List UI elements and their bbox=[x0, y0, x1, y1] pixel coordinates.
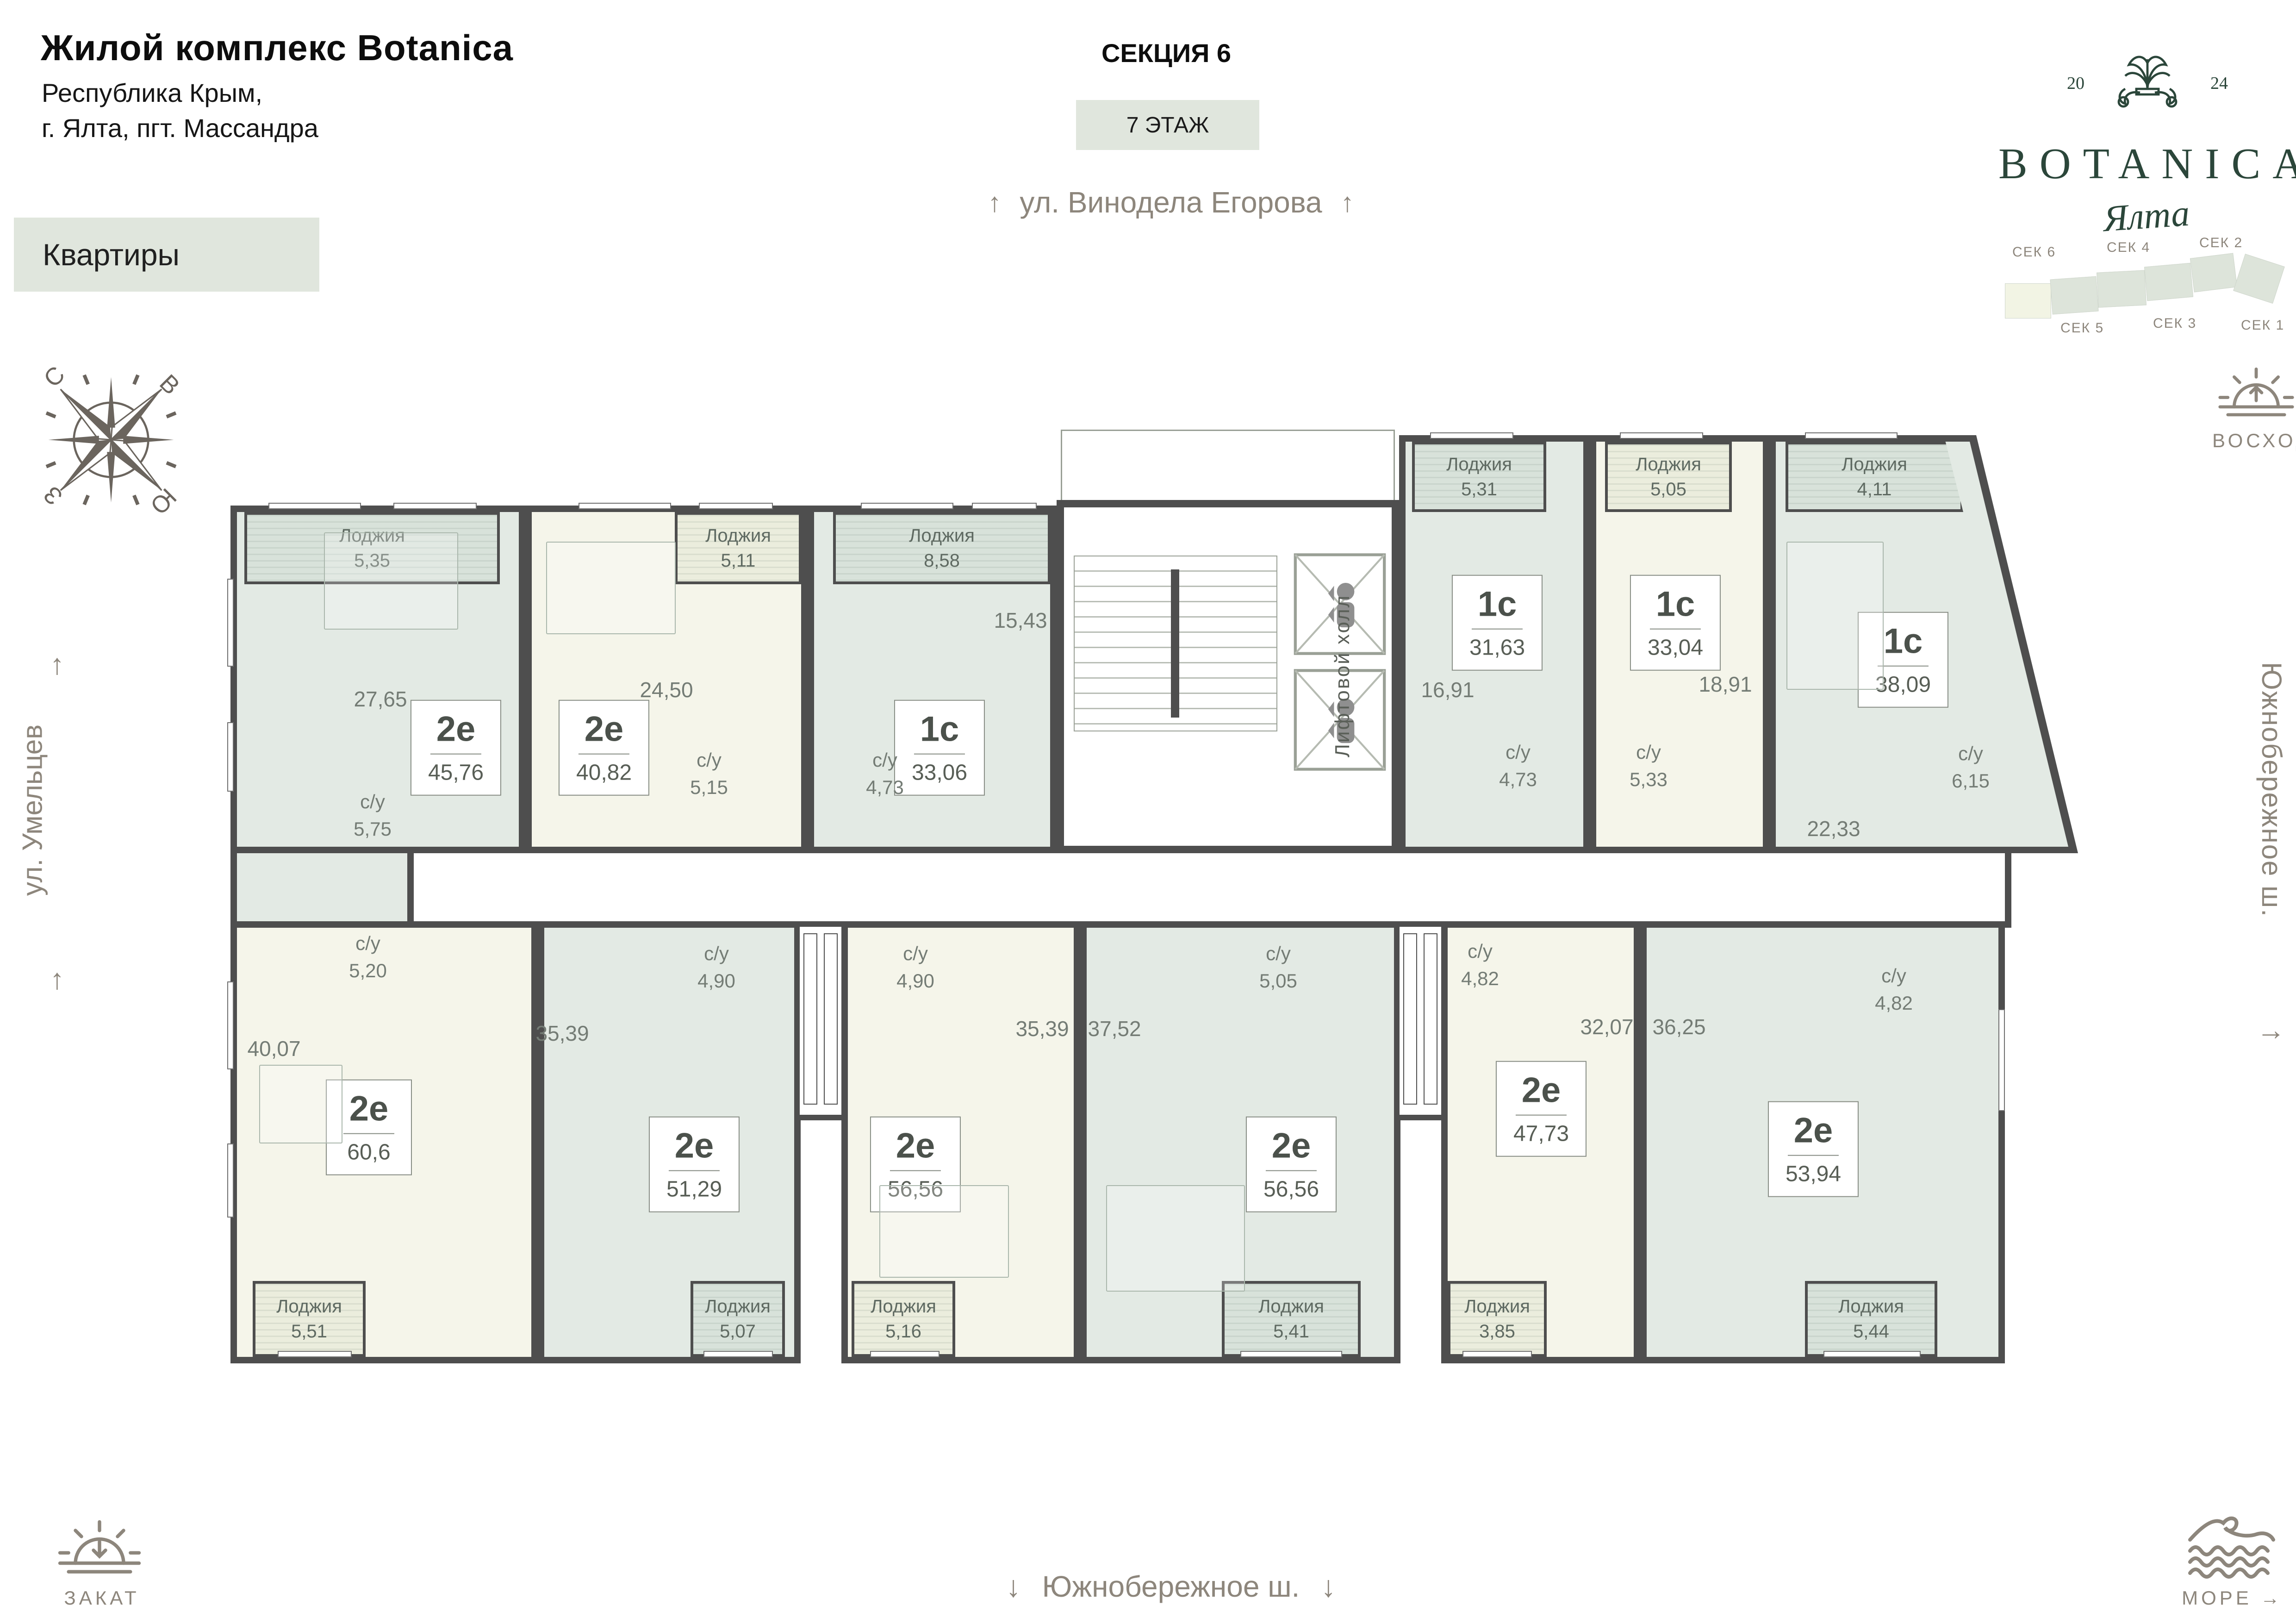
loggia: Лоджия5,51 bbox=[253, 1281, 366, 1357]
section-map-segment-3[interactable] bbox=[2144, 263, 2193, 301]
loggia: Лоджия5,16 bbox=[852, 1281, 955, 1357]
window bbox=[861, 503, 953, 509]
loggia: Лоджия5,41 bbox=[1222, 1281, 1361, 1357]
window bbox=[1620, 432, 1703, 439]
room-area: 36,25 bbox=[1652, 1014, 1705, 1039]
loggia: Лоджия4,11 bbox=[1786, 442, 1963, 512]
room-area: 27,65 bbox=[354, 687, 407, 712]
compass-rose-icon: С В З Ю bbox=[32, 361, 190, 518]
room-area: 32,07 bbox=[1580, 1014, 1633, 1039]
window bbox=[227, 1143, 234, 1218]
arrow-down-icon: ↓ bbox=[1006, 1569, 1021, 1604]
loggia: Лоджия5,31 bbox=[1412, 442, 1546, 512]
window bbox=[278, 1351, 352, 1357]
apartment-type-badge[interactable]: 1с33,04 bbox=[1630, 575, 1721, 671]
sunset-icon bbox=[56, 1518, 143, 1579]
bathroom-label: с/у6,15 bbox=[1952, 740, 1990, 795]
elevator-hall-label: Лифтовой холл bbox=[1328, 593, 1357, 759]
window bbox=[1998, 1009, 2005, 1111]
logo-year-right: 24 bbox=[2210, 73, 2228, 94]
section-map-segment-4[interactable] bbox=[2097, 270, 2147, 307]
arrow-up-icon: ↑ bbox=[988, 187, 1001, 218]
section-title: СЕКЦИЯ 6 bbox=[1060, 38, 1273, 68]
bathroom-label: с/у4,73 bbox=[866, 747, 904, 801]
window bbox=[579, 503, 671, 509]
apartment-type-badge[interactable]: 2е45,76 bbox=[411, 700, 501, 796]
furniture-bed bbox=[1106, 1185, 1245, 1292]
apartment-type-badge[interactable]: 2е47,73 bbox=[1496, 1061, 1587, 1157]
street-right-label: Южнобережное ш. bbox=[2256, 662, 2288, 918]
street-bottom-label: Южнобережное ш. bbox=[1042, 1569, 1300, 1604]
sea-row: МОРЕ → bbox=[2175, 1587, 2286, 1609]
compass-south: Ю bbox=[145, 483, 181, 518]
arrow-up-icon: ↑ bbox=[50, 648, 64, 681]
address-line-1: Республика Крым, bbox=[42, 78, 262, 108]
section-map-label: СЕК 6 bbox=[2012, 244, 2056, 260]
compass-west: З bbox=[38, 481, 68, 510]
floor-badge[interactable]: 7 ЭТАЖ bbox=[1076, 100, 1259, 150]
ventilation-shaft bbox=[1394, 921, 1448, 1120]
sunrise-label: ВОСХОД bbox=[2212, 430, 2296, 452]
apartment-type-badge[interactable]: 2е40,82 bbox=[559, 700, 649, 796]
section-map-segment-6[interactable] bbox=[2005, 283, 2051, 319]
room-area: 15,43 bbox=[994, 608, 1047, 633]
room-area: 37,52 bbox=[1088, 1016, 1141, 1041]
loggia: Лоджия3,85 bbox=[1448, 1281, 1547, 1357]
apartment-type-badge[interactable]: 1с31,63 bbox=[1452, 575, 1543, 671]
furniture-table bbox=[259, 1065, 342, 1143]
loggia: Лоджия5,05 bbox=[1605, 442, 1732, 512]
address-line-2: г. Ялта, пгт. Массандра bbox=[42, 113, 318, 143]
bathroom-label: с/у5,20 bbox=[349, 930, 387, 985]
street-top: ↑ ул. Винодела Егорова ↑ bbox=[870, 185, 1472, 219]
section-map-segment-5[interactable] bbox=[2050, 276, 2098, 315]
section-map-label: СЕК 2 bbox=[2199, 235, 2243, 251]
window bbox=[972, 503, 1037, 509]
bathroom-label: с/у4,90 bbox=[697, 940, 735, 995]
bathroom-label: с/у5,05 bbox=[1259, 940, 1297, 995]
street-left-label: ул. Умельцев bbox=[17, 648, 49, 972]
corridor bbox=[401, 847, 2011, 928]
room-area: 22,33 bbox=[1807, 816, 1860, 841]
palmette-ornament-icon bbox=[2101, 37, 2194, 130]
section-map-label: СЕК 3 bbox=[2153, 316, 2196, 331]
furniture-sofa bbox=[1786, 542, 1884, 690]
apartments-chip: Квартиры bbox=[14, 218, 319, 292]
window bbox=[1823, 1351, 1921, 1357]
brand-city: Ялта bbox=[1997, 185, 2296, 248]
room-area: 24,50 bbox=[640, 677, 693, 702]
section-map-segment-1[interactable] bbox=[2233, 254, 2285, 304]
bathroom-label: с/у4,73 bbox=[1499, 739, 1537, 793]
sunset-label: ЗАКАТ bbox=[51, 1587, 153, 1609]
apartment-type-badge[interactable]: 2е53,94 bbox=[1768, 1101, 1859, 1197]
compass-east: В bbox=[154, 369, 185, 400]
stair-rail bbox=[1171, 569, 1179, 718]
bathroom-label: с/у4,82 bbox=[1875, 962, 1913, 1017]
window bbox=[1805, 432, 1898, 439]
ventilation-shaft bbox=[794, 921, 848, 1120]
loggia: Лоджия5,44 bbox=[1805, 1281, 1937, 1357]
window bbox=[699, 503, 773, 509]
furniture-bed bbox=[324, 532, 458, 630]
bathroom-label: с/у4,90 bbox=[896, 940, 934, 995]
room-area: 18,91 bbox=[1699, 672, 1752, 697]
room-area: 16,91 bbox=[1421, 677, 1474, 702]
arrow-up-icon: ↑ bbox=[50, 963, 64, 996]
sea-label: МОРЕ bbox=[2182, 1587, 2252, 1609]
page-title: Жилой комплекс Botanica bbox=[41, 27, 513, 69]
room-area: 40,07 bbox=[247, 1036, 300, 1061]
entrance-vestibule bbox=[1061, 430, 1395, 506]
arrow-right-icon: → bbox=[2257, 1014, 2285, 1047]
arrow-right-icon: → bbox=[2260, 1587, 2280, 1609]
window bbox=[227, 981, 234, 1069]
window bbox=[1240, 1351, 1342, 1357]
section-map-label: СЕК 4 bbox=[2107, 240, 2150, 256]
compass-north: С bbox=[38, 361, 70, 393]
room-area: 35,39 bbox=[535, 1021, 589, 1046]
loggia: Лоджия8,58 bbox=[833, 512, 1051, 584]
bathroom-label: с/у5,33 bbox=[1630, 739, 1668, 793]
sea-icon bbox=[2184, 1508, 2277, 1582]
brand-wordmark: BOTANICA bbox=[1998, 139, 2295, 189]
sunrise-icon bbox=[2217, 366, 2296, 421]
logo-ornament-row: 20 24 bbox=[2046, 37, 2249, 130]
window bbox=[268, 503, 361, 509]
apartment-type-badge[interactable]: 2е51,29 bbox=[649, 1117, 740, 1212]
window bbox=[703, 1351, 773, 1357]
room-area: 35,39 bbox=[1015, 1016, 1069, 1041]
apartment-type-badge[interactable]: 2е56,56 bbox=[1246, 1117, 1337, 1212]
logo-year-left: 20 bbox=[2067, 73, 2084, 94]
apartment-type-badge[interactable]: 1с33,06 bbox=[894, 700, 985, 796]
window bbox=[227, 579, 234, 667]
section-map-segment-2[interactable] bbox=[2190, 253, 2237, 293]
furniture-bed bbox=[879, 1185, 1009, 1278]
bathroom-label: с/у5,75 bbox=[354, 788, 392, 843]
window bbox=[870, 1351, 940, 1357]
window bbox=[393, 503, 477, 509]
section-map-label: СЕК 5 bbox=[2060, 320, 2104, 336]
section-map-label: СЕК 1 bbox=[2241, 318, 2284, 333]
street-bottom: ↓ Южнобережное ш. ↓ bbox=[870, 1569, 1472, 1604]
furniture-bed bbox=[546, 542, 676, 634]
loggia: Лоджия5,07 bbox=[691, 1281, 785, 1357]
arrow-down-icon: ↓ bbox=[1321, 1569, 1336, 1604]
arrow-up-icon: ↑ bbox=[1341, 187, 1354, 218]
window bbox=[1430, 432, 1513, 439]
street-top-label: ул. Винодела Егорова bbox=[1020, 185, 1322, 219]
window bbox=[1462, 1351, 1532, 1357]
apartment-2e-45-76-bath[interactable] bbox=[230, 847, 414, 928]
bathroom-label: с/у5,15 bbox=[690, 747, 728, 801]
bathroom-label: с/у4,82 bbox=[1461, 938, 1499, 993]
window bbox=[227, 722, 234, 792]
loggia: Лоджия5,11 bbox=[675, 512, 802, 584]
